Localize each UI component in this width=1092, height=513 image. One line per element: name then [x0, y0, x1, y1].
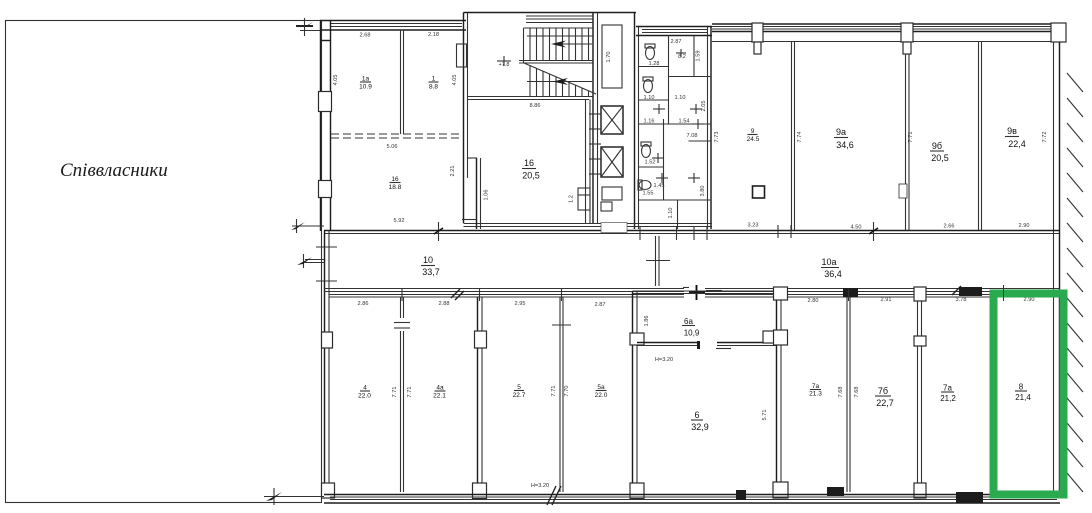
svg-text:Н=3.20: Н=3.20 — [655, 357, 673, 363]
svg-text:4.50: 4.50 — [851, 225, 862, 231]
svg-text:1.52: 1.52 — [645, 160, 656, 166]
svg-text:18.8: 18.8 — [389, 184, 402, 191]
svg-text:8.8: 8.8 — [429, 84, 438, 91]
svg-text:16: 16 — [524, 158, 534, 168]
svg-text:9а: 9а — [836, 127, 846, 137]
svg-text:1.28: 1.28 — [649, 61, 660, 67]
svg-text:1.06: 1.06 — [484, 190, 490, 201]
svg-text:22.0: 22.0 — [595, 392, 608, 399]
svg-text:2.21: 2.21 — [450, 166, 456, 177]
svg-text:7.71: 7.71 — [392, 387, 398, 398]
svg-text:1.16: 1.16 — [644, 119, 655, 125]
svg-text:22.1: 22.1 — [433, 393, 446, 400]
svg-text:8.86: 8.86 — [530, 103, 541, 109]
svg-text:1.59: 1.59 — [696, 51, 702, 62]
svg-text:2.68: 2.68 — [360, 33, 371, 39]
svg-text:36,4: 36,4 — [824, 269, 842, 279]
svg-text:1.10: 1.10 — [668, 208, 674, 219]
svg-text:7.68: 7.68 — [838, 387, 844, 398]
svg-text:8: 8 — [1019, 383, 1024, 392]
svg-text:20,5: 20,5 — [931, 153, 949, 163]
svg-text:Н=3.20: Н=3.20 — [531, 483, 549, 489]
svg-text:10,9: 10,9 — [684, 329, 700, 338]
svg-text:20,5: 20,5 — [522, 171, 540, 181]
svg-text:3.80: 3.80 — [700, 186, 706, 197]
svg-text:9б: 9б — [932, 141, 942, 151]
svg-text:3.78: 3.78 — [956, 297, 967, 303]
svg-text:5.06: 5.06 — [387, 144, 398, 150]
svg-text:24.5: 24.5 — [747, 136, 760, 143]
svg-text:22.7: 22.7 — [513, 392, 526, 399]
svg-text:7.71: 7.71 — [908, 132, 914, 143]
svg-text:7б: 7б — [878, 386, 888, 396]
svg-text:2.90: 2.90 — [1019, 223, 1030, 229]
svg-text:2.91: 2.91 — [881, 297, 892, 303]
svg-text:7.70: 7.70 — [564, 386, 570, 397]
svg-text:5.92: 5.92 — [394, 218, 405, 224]
svg-text:5.71: 5.71 — [762, 410, 768, 421]
svg-text:6: 6 — [694, 410, 699, 420]
svg-text:1.45: 1.45 — [654, 183, 665, 189]
svg-text:7.71: 7.71 — [551, 386, 557, 397]
svg-text:1.55: 1.55 — [643, 191, 654, 197]
svg-text:10.9: 10.9 — [359, 84, 372, 91]
svg-text:6а: 6а — [684, 317, 693, 326]
svg-text:34,6: 34,6 — [836, 140, 854, 150]
svg-text:1.70: 1.70 — [606, 52, 612, 63]
svg-text:22.0: 22.0 — [358, 393, 371, 400]
svg-text:2.66: 2.66 — [944, 224, 955, 230]
svg-text:32,9: 32,9 — [691, 422, 709, 432]
svg-text:1.2: 1.2 — [569, 195, 575, 203]
svg-text:1.86: 1.86 — [644, 316, 650, 327]
svg-text:10: 10 — [423, 255, 433, 265]
svg-text:Співвласники: Співвласники — [60, 160, 168, 181]
svg-text:7.73: 7.73 — [714, 132, 720, 143]
svg-text:2.90: 2.90 — [1024, 297, 1035, 303]
svg-text:2.80: 2.80 — [808, 298, 819, 304]
svg-text:1.54: 1.54 — [679, 119, 690, 125]
svg-text:2.95: 2.95 — [515, 301, 526, 307]
svg-text:1.10: 1.10 — [644, 95, 655, 101]
svg-text:2.86: 2.86 — [358, 301, 369, 307]
svg-text:2.87: 2.87 — [671, 39, 682, 45]
svg-text:2.05: 2.05 — [701, 101, 707, 112]
svg-text:21.3: 21.3 — [809, 391, 822, 398]
svg-text:7.08: 7.08 — [687, 133, 698, 139]
svg-text:2.87: 2.87 — [595, 302, 606, 308]
svg-text:8.2: 8.2 — [678, 54, 686, 60]
svg-text:33,7: 33,7 — [422, 267, 440, 277]
svg-text:4.05: 4.05 — [333, 75, 339, 86]
svg-text:4.05: 4.05 — [452, 75, 458, 86]
svg-text:21,4: 21,4 — [1015, 393, 1031, 402]
svg-text:7.72: 7.72 — [1042, 132, 1048, 143]
svg-text:7.74: 7.74 — [797, 132, 803, 143]
svg-text:2.18: 2.18 — [428, 32, 439, 38]
svg-text:21,2: 21,2 — [940, 394, 956, 403]
svg-text:22,4: 22,4 — [1008, 139, 1026, 149]
svg-text:2.88: 2.88 — [439, 301, 450, 307]
svg-text:1.10: 1.10 — [675, 95, 686, 101]
svg-text:9в: 9в — [1007, 126, 1017, 136]
svg-text:7.68: 7.68 — [854, 387, 860, 398]
svg-text:10а: 10а — [821, 257, 836, 267]
svg-text:7а: 7а — [943, 384, 952, 393]
svg-text:3.23: 3.23 — [748, 223, 759, 229]
svg-text:22,7: 22,7 — [876, 398, 894, 408]
svg-text:7.71: 7.71 — [407, 387, 413, 398]
